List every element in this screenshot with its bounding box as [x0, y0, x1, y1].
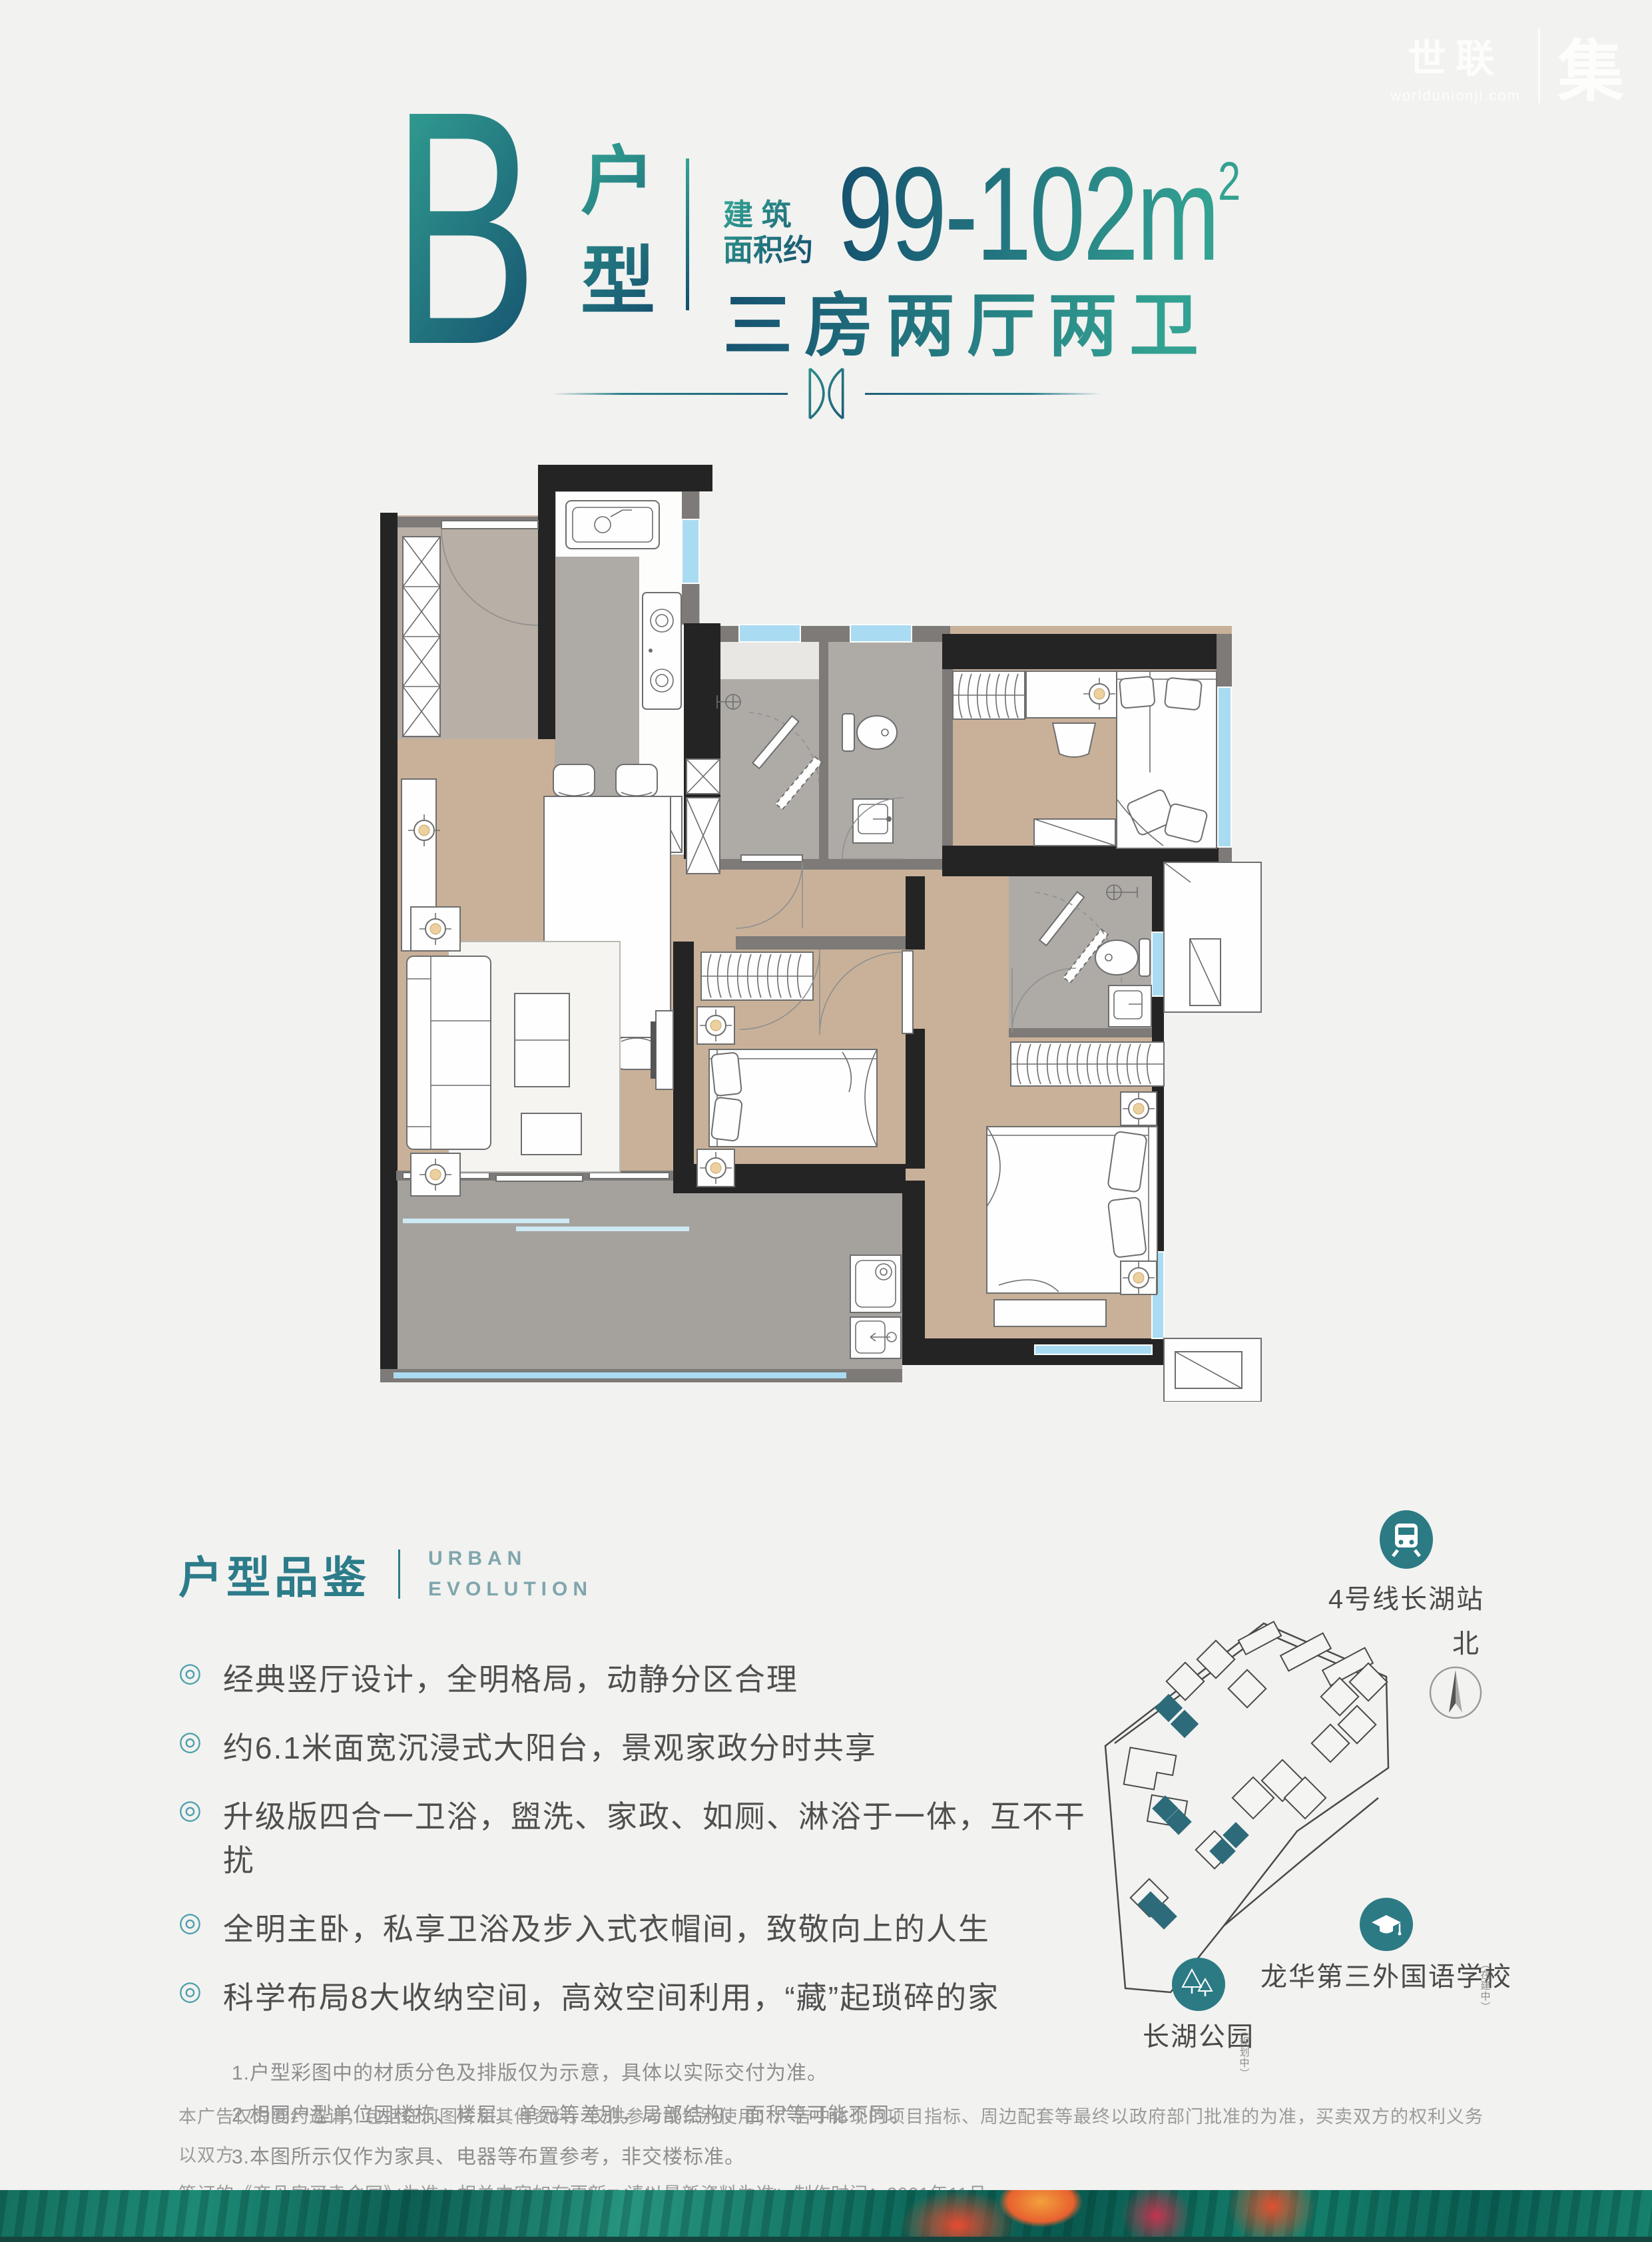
- feature-item: ◎经典竖厅设计，全明格局，动静分区合理: [178, 1655, 1111, 1699]
- feature-text: 全明主卧，私享卫浴及步入式衣帽间，致敬向上的人生: [223, 1905, 990, 1949]
- kitchen-stove: [643, 593, 681, 709]
- appraisal-title: 户型品鉴: [178, 1542, 370, 1606]
- feature-item: ◎科学布局8大收纳空间，高效空间利用，“藏”起琐碎的家: [178, 1974, 1111, 2018]
- north-compass-icon: [1430, 1667, 1481, 1718]
- area-prefix-line2: 面积约: [723, 232, 813, 268]
- layout-description: 三房两厅两卫: [723, 269, 1211, 370]
- feature-item: ◎升级版四合一卫浴，盥洗、家政、如厕、淋浴于一体，互不干扰: [178, 1793, 1111, 1880]
- north-label: 北: [1452, 1629, 1480, 1659]
- floor-plan: [376, 426, 1268, 1402]
- appraisal-subtitle-line1: URBAN: [428, 1543, 593, 1575]
- butterfly-logo-icon: [805, 365, 848, 422]
- watermark-suffix: 集: [1557, 17, 1624, 114]
- watermark-brand: 世联: [1408, 27, 1504, 83]
- entry-wardrobe: [403, 537, 440, 736]
- site-buildings: [1124, 1621, 1388, 1929]
- appraisal-subtitle-line2: EVOLUTION: [428, 1574, 593, 1605]
- section-divider: [551, 365, 1101, 422]
- area-superscript: 2: [1218, 151, 1240, 212]
- feature-text: 科学布局8大收纳空间，高效空间利用，“藏”起琐碎的家: [223, 1974, 999, 2018]
- strip-base-line: [0, 2237, 1652, 2242]
- unit-type-letter: B: [392, 61, 538, 394]
- site-map: 4号线长湖站 北: [1085, 1485, 1512, 2084]
- unit-type-label: 户型: [581, 132, 659, 332]
- bullseye-icon: ◎: [178, 1976, 203, 2006]
- feature-text: 经典竖厅设计，全明格局，动静分区合理: [223, 1655, 798, 1699]
- school-status-note: （在建中）: [1480, 1959, 1491, 2012]
- park-status-note: （规划中）: [1239, 2026, 1250, 2079]
- feature-text: 升级版四合一卫浴，盥洗、家政、如厕、淋浴于一体，互不干扰: [223, 1793, 1111, 1880]
- bullseye-icon: ◎: [178, 1726, 203, 1757]
- appraisal-subtitle: URBAN EVOLUTION: [428, 1543, 593, 1605]
- floorplan-poster-page: 世联 worldunionji.com 集 B 户型 建 筑 面积约 99-10…: [0, 0, 1652, 2242]
- feature-text: 约6.1米面宽沉浸式大阳台，景观家政分时共享: [223, 1724, 877, 1768]
- kitchen-sink: [566, 501, 659, 549]
- disclaimer-line1: 本广告仅为要约邀请，包括任何图片和其他资料，仅供参考或识别使用；广告中体现的项目…: [178, 2098, 1497, 2175]
- park-icon: [1172, 1958, 1225, 2011]
- bullseye-icon: ◎: [178, 1907, 203, 1938]
- area-number: 99-102m: [838, 140, 1218, 288]
- watermark-divider: [1538, 29, 1540, 103]
- feature-item: ◎全明主卧，私享卫浴及步入式衣帽间，致敬向上的人生: [178, 1905, 1111, 1949]
- brand-watermark: 世联 worldunionji.com 集: [1390, 17, 1624, 114]
- school-icon: [1360, 1898, 1413, 1951]
- feature-item: ◎约6.1米面宽沉浸式大阳台，景观家政分时共享: [178, 1724, 1111, 1768]
- tropical-image-strip: [0, 2190, 1652, 2237]
- appraisal-divider: [398, 1549, 400, 1599]
- appraisal-header: 户型品鉴 URBAN EVOLUTION: [178, 1542, 1111, 1606]
- area-prefix-line1: 建 筑: [723, 197, 813, 232]
- balcony-laundry: [850, 1255, 901, 1358]
- note-item: 1.户型彩图中的材质分色及排版仅为示意，具体以实际交付为准。: [232, 2056, 1111, 2086]
- metro-station-label: 4号线长湖站: [1328, 1585, 1484, 1614]
- school-label: 龙华第三外国语学校: [1260, 1962, 1512, 1992]
- bullseye-icon: ◎: [178, 1795, 203, 1825]
- feature-list: ◎经典竖厅设计，全明格局，动静分区合理 ◎约6.1米面宽沉浸式大阳台，景观家政分…: [178, 1655, 1111, 2018]
- walkin-closet: [1011, 1042, 1164, 1086]
- area-value: 99-102m2: [838, 148, 1240, 281]
- header-vertical-rule: [686, 158, 689, 310]
- bullseye-icon: ◎: [178, 1657, 203, 1688]
- metro-station-icon: [1380, 1510, 1433, 1569]
- watermark-domain: worldunionji.com: [1390, 87, 1521, 105]
- area-prefix: 建 筑 面积约: [723, 197, 813, 268]
